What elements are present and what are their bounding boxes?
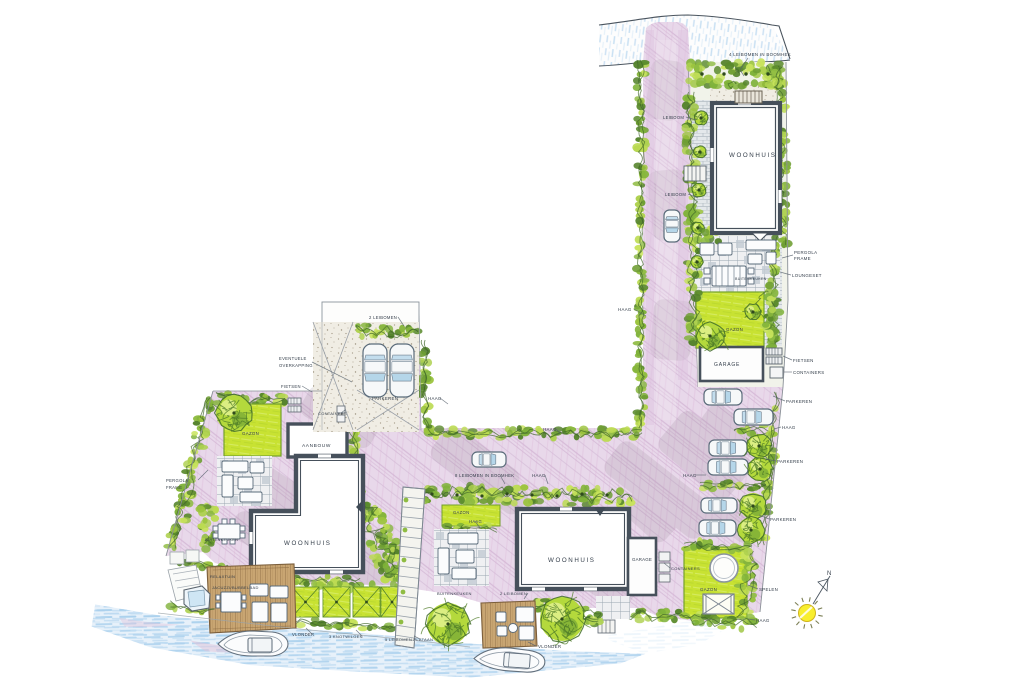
- svg-text:HAAG: HAAG: [683, 473, 697, 478]
- svg-text:LOUNGESET: LOUNGESET: [792, 273, 822, 278]
- svg-text:CONTAINERS: CONTAINERS: [793, 370, 824, 375]
- svg-text:2 LEIBOMEN: 2 LEIBOMEN: [500, 591, 527, 596]
- svg-text:PARKEREN: PARKEREN: [770, 517, 796, 522]
- svg-text:WOONHUIS: WOONHUIS: [284, 540, 332, 547]
- svg-text:HAAG: HAAG: [618, 307, 632, 312]
- svg-text:N: N: [827, 571, 831, 577]
- svg-text:3 KNOTWILGEN: 3 KNOTWILGEN: [329, 634, 363, 639]
- svg-text:BUITENKEUKEN: BUITENKEUKEN: [437, 591, 472, 596]
- svg-text:GARAGE: GARAGE: [632, 557, 652, 562]
- svg-text:8 LEIBOMEN IN BOOMHEK: 8 LEIBOMEN IN BOOMHEK: [455, 473, 514, 478]
- svg-text:WOONHUIS: WOONHUIS: [548, 557, 596, 564]
- svg-text:HAAG: HAAG: [428, 396, 442, 401]
- svg-text:OVERKAPPING: OVERKAPPING: [279, 363, 313, 368]
- svg-text:WOONHUIS: WOONHUIS: [729, 152, 777, 159]
- svg-text:PARKEREN: PARKEREN: [372, 396, 398, 401]
- svg-text:PERGOLA: PERGOLA: [794, 250, 817, 255]
- svg-text:PARKEREN: PARKEREN: [786, 399, 812, 404]
- svg-text:4 LEIBOMEN IN BOOMHEK: 4 LEIBOMEN IN BOOMHEK: [729, 52, 791, 57]
- svg-text:RELAXTUIN: RELAXTUIN: [210, 574, 235, 579]
- svg-text:GAZON: GAZON: [700, 587, 717, 592]
- svg-text:GARAGE: GARAGE: [714, 362, 740, 368]
- svg-text:CONTAINERS: CONTAINERS: [671, 566, 700, 571]
- svg-text:FRAME: FRAME: [794, 256, 811, 261]
- svg-text:JACUZZI/BUBBELBAD: JACUZZI/BUBBELBAD: [212, 585, 259, 590]
- svg-text:FIETSEN: FIETSEN: [281, 384, 301, 389]
- svg-text:HAAG: HAAG: [756, 618, 770, 623]
- svg-text:GAZON: GAZON: [453, 510, 469, 515]
- svg-text:SPELEN: SPELEN: [759, 587, 778, 592]
- svg-text:5 LEIBOMEN PLATAAN: 5 LEIBOMEN PLATAAN: [385, 637, 433, 642]
- svg-text:2 LEIBOMEN: 2 LEIBOMEN: [369, 315, 397, 320]
- svg-text:BUITENKEUKEN: BUITENKEUKEN: [205, 538, 238, 542]
- svg-text:VLONDER: VLONDER: [538, 644, 561, 649]
- svg-text:AANBOUW: AANBOUW: [302, 443, 331, 449]
- svg-text:FRAME: FRAME: [166, 485, 182, 490]
- svg-text:LEIBOOM: LEIBOOM: [663, 115, 684, 120]
- svg-text:HAAG: HAAG: [543, 427, 557, 432]
- svg-text:HAAG: HAAG: [782, 425, 796, 430]
- svg-text:PARKEREN: PARKEREN: [777, 459, 803, 464]
- svg-text:GAZON: GAZON: [242, 431, 259, 436]
- svg-text:LEIBOOM: LEIBOOM: [665, 192, 686, 197]
- svg-text:PERGOLA: PERGOLA: [166, 478, 188, 483]
- svg-text:GAZON: GAZON: [726, 327, 743, 332]
- svg-text:HAAG: HAAG: [532, 473, 546, 478]
- svg-text:FIETSEN: FIETSEN: [793, 358, 814, 363]
- svg-text:BUITENKEUKEN: BUITENKEUKEN: [735, 277, 767, 281]
- svg-text:EVENTUELE: EVENTUELE: [279, 356, 307, 361]
